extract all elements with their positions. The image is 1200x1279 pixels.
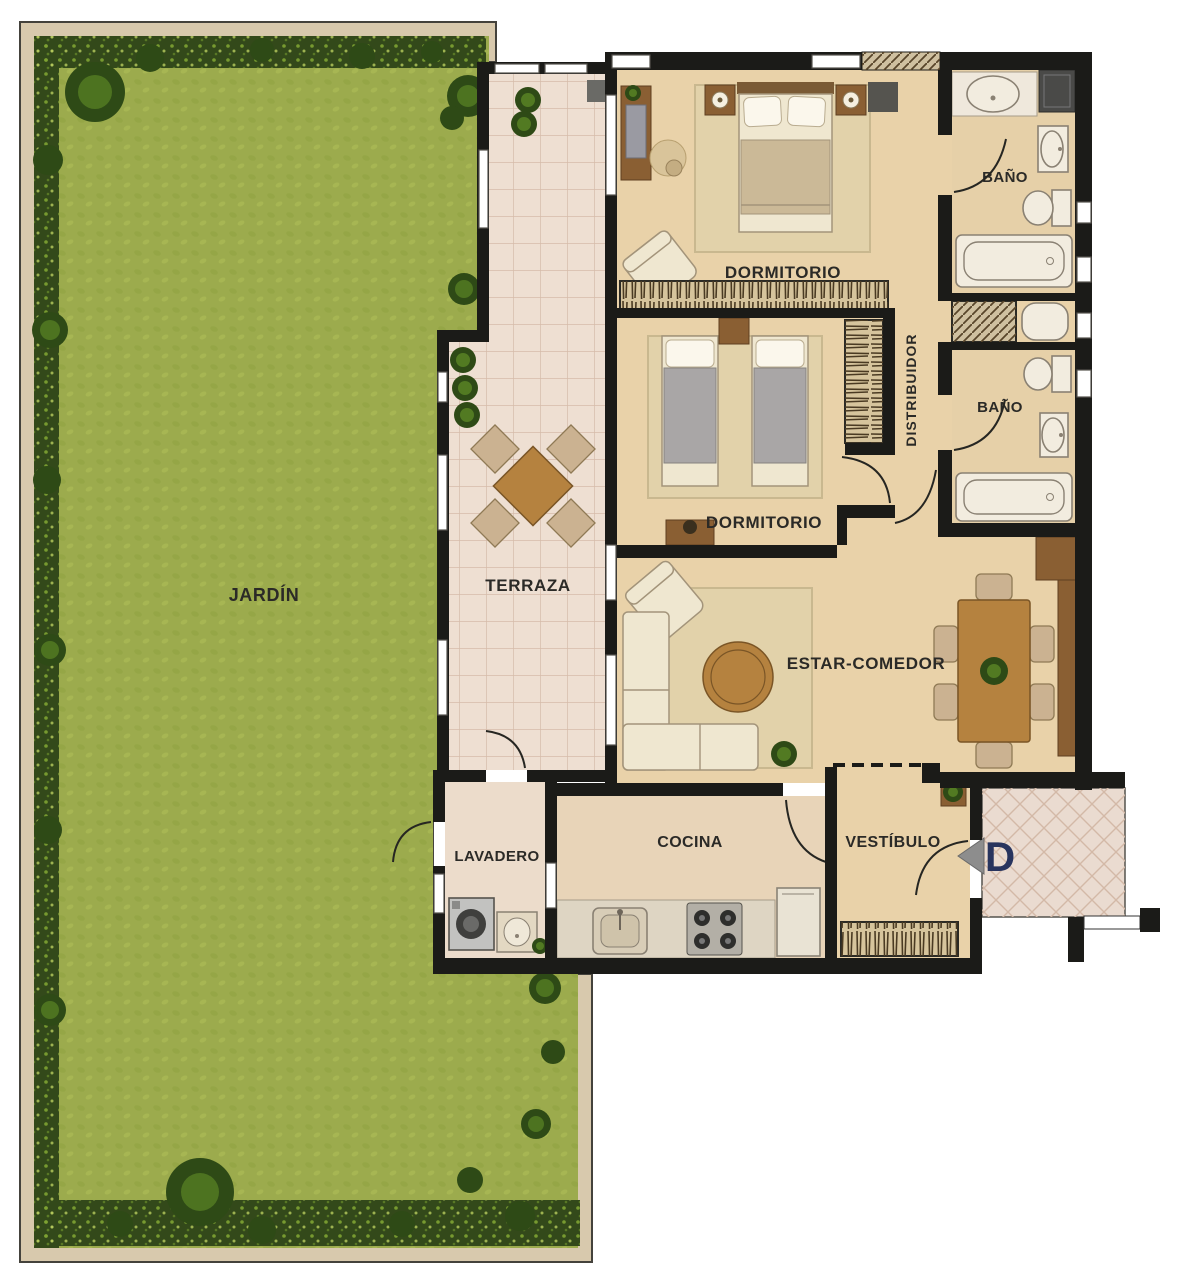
shower-niche — [952, 301, 1068, 342]
entrance-landing: D — [958, 788, 1160, 962]
label-distribuidor: DISTRIBUIDOR — [903, 333, 919, 446]
washing-machine — [449, 898, 494, 950]
laptop — [626, 105, 646, 158]
double-bed — [737, 82, 834, 232]
coffee-table — [703, 642, 773, 712]
corridor: DISTRIBUIDOR — [903, 333, 919, 446]
fridge — [777, 888, 820, 956]
pedestal-sink — [1038, 126, 1068, 172]
label-lavadero: LAVADERO — [454, 848, 539, 865]
bathtub-2 — [956, 473, 1072, 521]
pouf — [666, 160, 682, 176]
label-vestibulo: VESTÍBULO — [845, 832, 940, 851]
sideboard — [1058, 580, 1076, 756]
nightstand-between — [719, 318, 749, 344]
label-terraza: TERRAZA — [485, 576, 570, 595]
landing-stub-wall — [1068, 917, 1084, 962]
entrance-letter: D — [985, 833, 1015, 880]
bathtub-1 — [956, 235, 1072, 287]
corner-cabinet — [1036, 537, 1076, 580]
basin-2 — [1040, 413, 1068, 457]
label-cocina: COCINA — [657, 834, 723, 851]
stove — [687, 903, 742, 955]
top-wall-closet — [862, 52, 940, 70]
bedroom1-closet — [620, 281, 888, 309]
side-window — [1084, 916, 1140, 929]
kitchen-sink — [593, 908, 647, 954]
cabinet-dark — [868, 82, 898, 112]
vanity-sink — [967, 76, 1019, 112]
floor-plan-svg: JARDÍN TERRAZA — [0, 0, 1200, 1279]
toilet-2 — [1024, 356, 1071, 392]
bedroom2-wardrobe — [845, 320, 883, 443]
toilet-1 — [1023, 190, 1071, 226]
living-plant — [771, 741, 797, 767]
side-wall-block — [1140, 908, 1160, 932]
label-estar-comedor: ESTAR-COMEDOR — [787, 654, 946, 673]
twin-bed-right — [752, 336, 808, 486]
label-bano-1: BAÑO — [982, 168, 1028, 186]
label-dormitorio-2: DORMITORIO — [706, 513, 822, 532]
niche-fixture — [1022, 303, 1068, 340]
twin-bed-left — [662, 336, 718, 486]
floor-plan-page: JARDÍN TERRAZA — [0, 0, 1200, 1279]
label-dormitorio-1: DORMITORIO — [725, 263, 841, 282]
vestibule-closet — [841, 922, 958, 956]
laundry-sink — [497, 912, 537, 952]
label-jardin: JARDÍN — [229, 584, 300, 605]
label-bano-2: BAÑO — [977, 398, 1023, 416]
desk-chair — [683, 520, 697, 534]
